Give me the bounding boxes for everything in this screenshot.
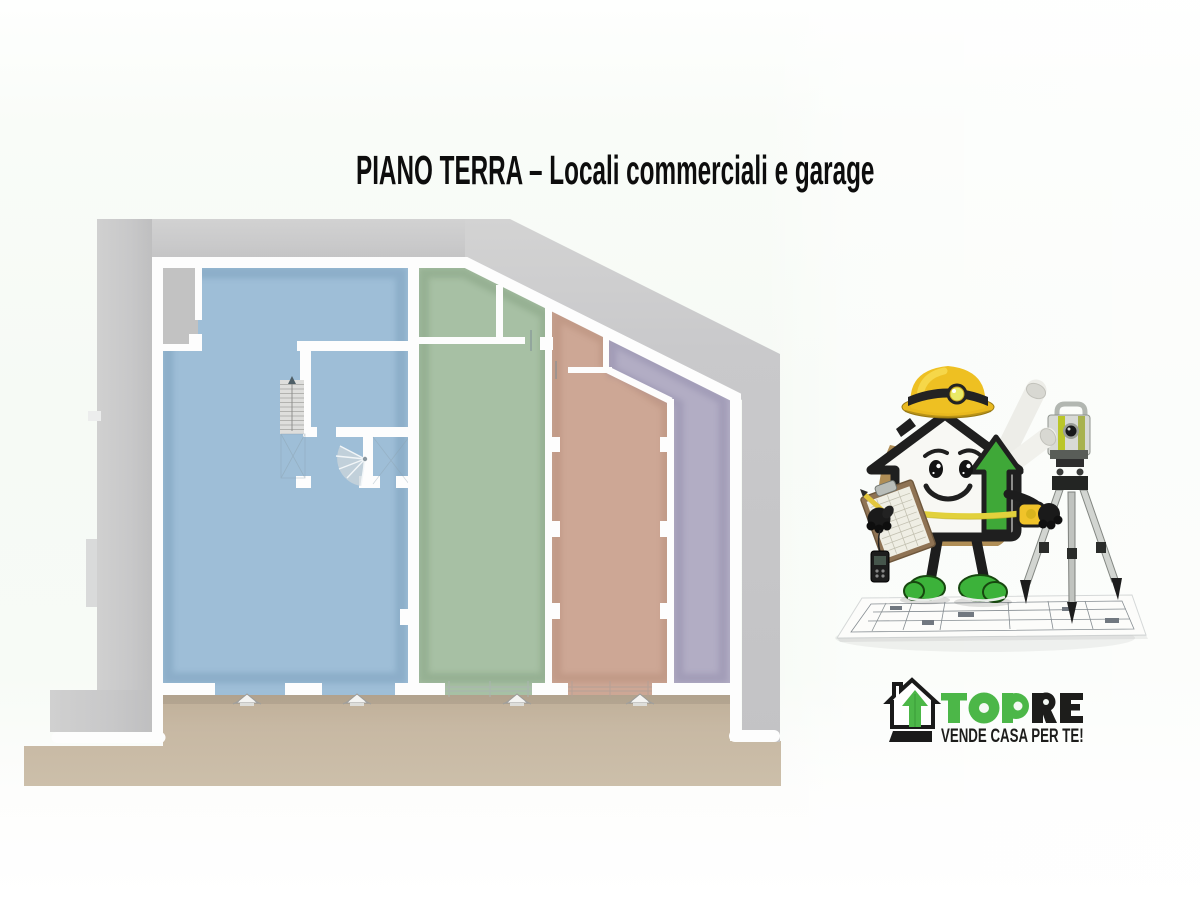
svg-text:VENDE CASA PER TE!: VENDE CASA PER TE! <box>941 726 1084 747</box>
